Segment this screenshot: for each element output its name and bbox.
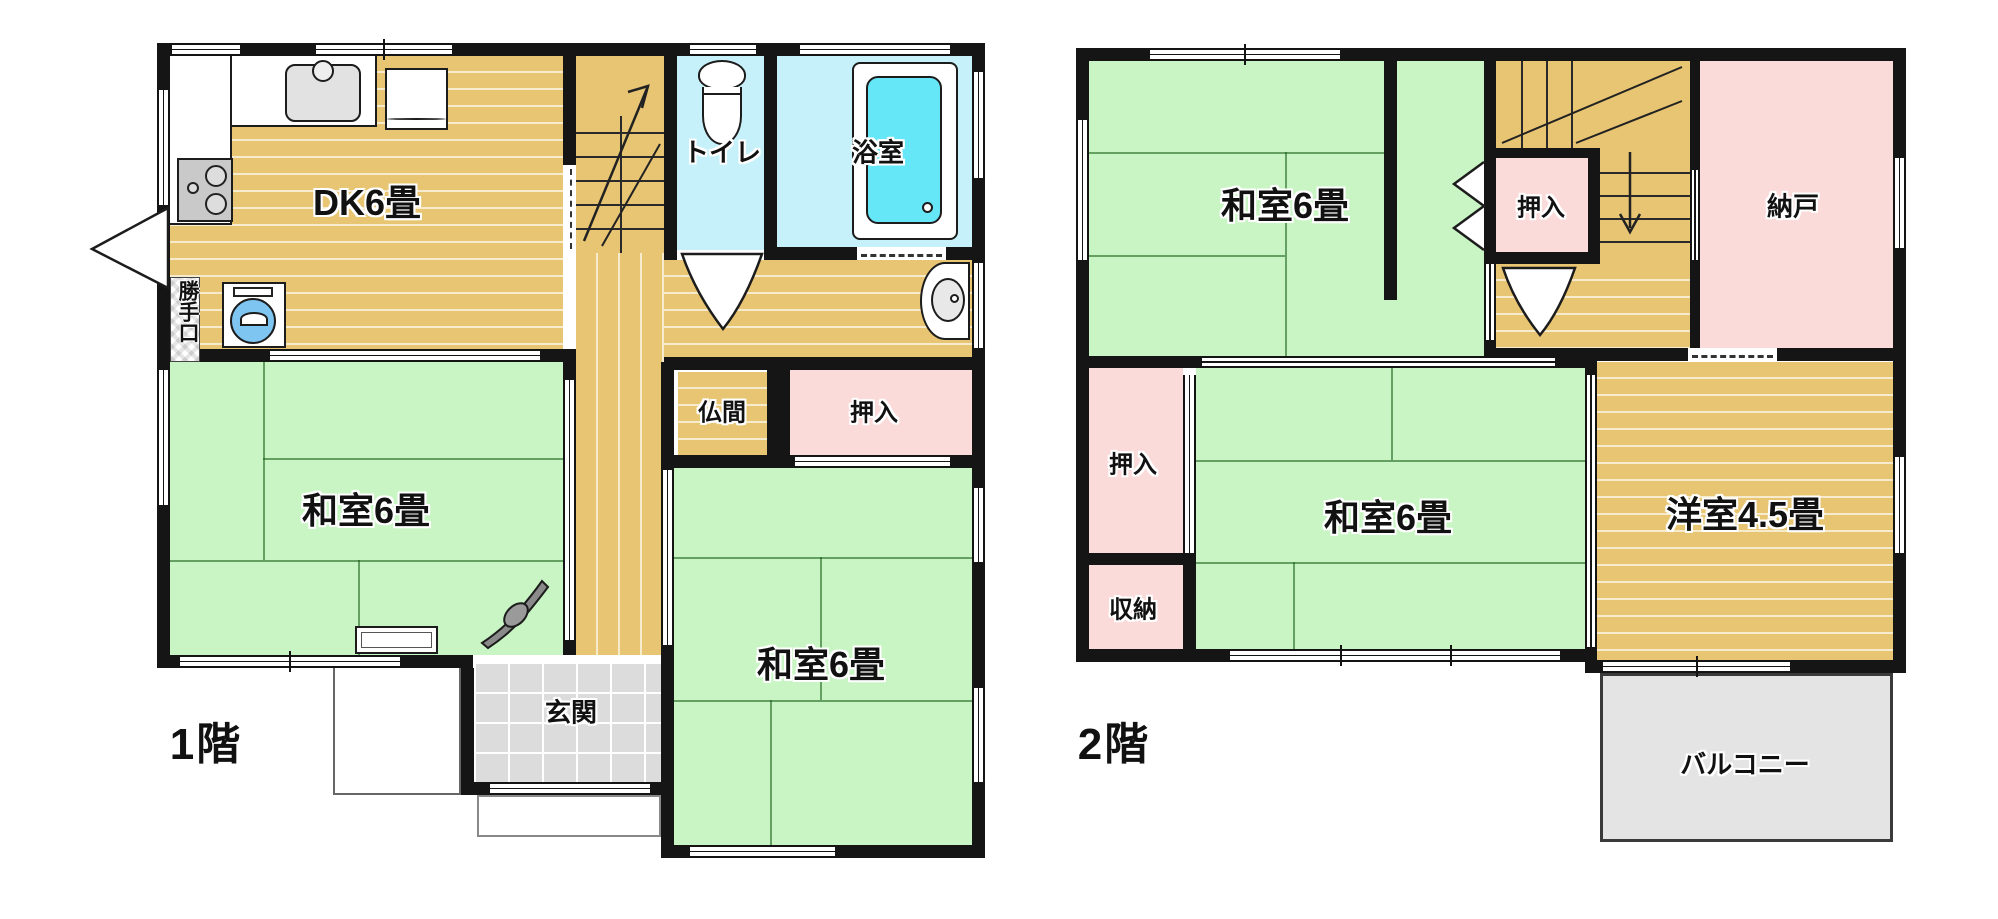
nando-sliding-door bbox=[1690, 170, 1700, 260]
staircase-2f-upper bbox=[1496, 61, 1690, 148]
window-tick bbox=[1244, 44, 1246, 65]
folding-closet-door-icon bbox=[1450, 160, 1486, 252]
door-opening bbox=[1484, 253, 1496, 340]
wall-segment bbox=[1076, 553, 1196, 565]
window bbox=[1893, 457, 1906, 553]
fusuma-partition bbox=[1202, 356, 1555, 368]
stair-down-arrow-icon bbox=[1600, 148, 1690, 264]
window bbox=[1230, 649, 1560, 662]
tatami-line bbox=[1196, 562, 1587, 564]
tatami-line bbox=[1089, 152, 1384, 154]
floor2-plan: 和室6畳 押入 納戸 押入 和室6畳 洋室4.5畳 収納 バルコニー 2階 bbox=[0, 0, 1998, 919]
floor-plan-canvas: 勝手口 bbox=[0, 0, 1998, 919]
closet-fusuma-door bbox=[1183, 375, 1196, 553]
window-tick bbox=[1450, 645, 1452, 666]
tatami-line bbox=[1391, 368, 1393, 460]
room-label-oshiire-mid: 押入 bbox=[1109, 445, 1157, 480]
room-label-nando: 納戸 bbox=[1767, 187, 1819, 224]
floor2-label: 2階 bbox=[1078, 708, 1150, 772]
wall-segment bbox=[1585, 647, 1597, 660]
wall-segment bbox=[1183, 565, 1196, 649]
tatami-line bbox=[1293, 562, 1295, 649]
wall-segment bbox=[1384, 61, 1397, 300]
sliding-door bbox=[1585, 375, 1597, 647]
room-label-shuunou: 収納 bbox=[1109, 590, 1157, 625]
wall-segment bbox=[1588, 148, 1600, 264]
wall-segment bbox=[1484, 252, 1600, 264]
room-label-oshiire-top: 押入 bbox=[1517, 188, 1565, 223]
room-label-washitsu-top: 和室6畳 bbox=[1221, 177, 1349, 229]
wall-segment bbox=[1076, 356, 1202, 368]
staircase-2f-down bbox=[1600, 148, 1690, 264]
youshitsu-opening-dashed bbox=[1688, 348, 1777, 361]
room-label-balcony: バルコニー bbox=[1680, 745, 1809, 782]
wall-segment bbox=[1585, 362, 1597, 375]
wall-segment bbox=[1496, 148, 1600, 158]
window bbox=[1076, 120, 1089, 260]
tatami-line bbox=[1196, 460, 1587, 462]
room-label-washitsu-mid: 和室6畳 bbox=[1324, 489, 1452, 541]
stair-diagonal-lines bbox=[1496, 61, 1690, 148]
window-tick bbox=[1340, 645, 1342, 666]
window-tick bbox=[1696, 656, 1698, 677]
tatami-line bbox=[1089, 255, 1285, 257]
hall-door-swing-icon bbox=[1500, 266, 1578, 340]
room-label-youshitsu: 洋室4.5畳 bbox=[1666, 486, 1824, 538]
window bbox=[1893, 158, 1906, 248]
